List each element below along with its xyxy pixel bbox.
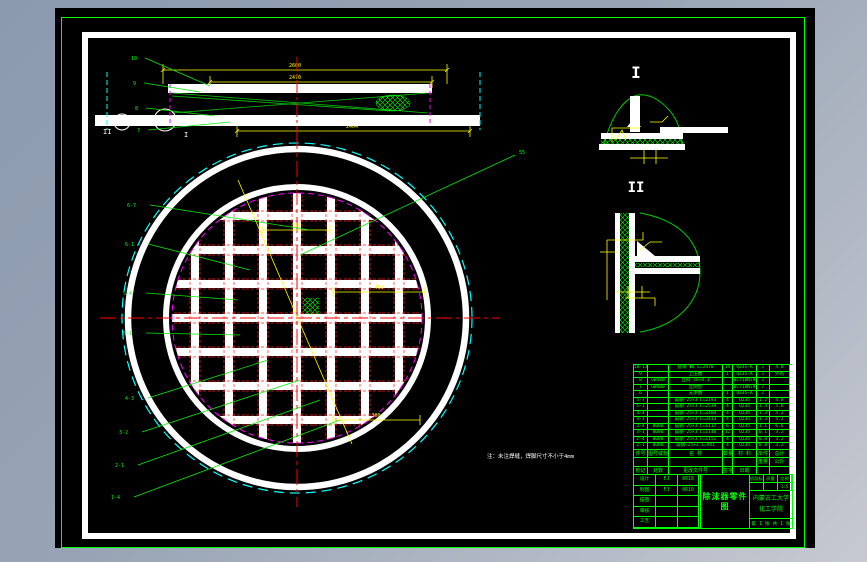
bom-head-cell: 重量 [757, 458, 770, 467]
bom-head-cell [648, 458, 669, 467]
bom-head-cell: 总计 [770, 450, 790, 459]
signature-name [656, 507, 678, 518]
mass-label: 质量 [764, 475, 778, 483]
title-block-right: 阶段标记 质量 比例 1:5 内蒙古工大学 化工学院 第 1 张 共 1 张 [750, 475, 792, 528]
bom-head-cell [723, 458, 733, 467]
signature-name [656, 496, 678, 507]
balloon-main-8: 1-4 [111, 495, 120, 501]
bom-head-cell: 图号或标准号 [648, 450, 669, 459]
bom-head-cell: 单件 [757, 450, 770, 459]
signature-row: 描图 [634, 496, 700, 507]
bill-of-materials: 10-13 圆钢 Φ8 L=2470 14 Q235-A / 4.8 9 上压圈… [633, 364, 792, 475]
signature-row: 制图 FJ 0610 [634, 486, 700, 497]
balloon-main-2: 6-1 [125, 242, 134, 248]
balloon-main-6: 3-2 [119, 430, 128, 436]
organization-line2: 化工学院 [750, 504, 792, 515]
balloon-top-3: 8 [135, 106, 138, 112]
top-view-dimension-lines [161, 64, 472, 137]
signature-name [656, 517, 678, 528]
signature-role: 审核 [634, 507, 656, 518]
detail-i-hatch-band [601, 139, 683, 144]
title-block-marks-row: 阶段标记 质量 比例 [750, 475, 792, 483]
balloon-main-5: 4-3 [125, 396, 134, 402]
top-side-view: 2600 2470 2404 II I 10 9 [95, 56, 480, 143]
balloon-main-4: 5-1 [123, 331, 132, 337]
bom-rows: 10-13 圆钢 Φ8 L=2470 14 Q235-A / 4.8 9 上压圈… [634, 365, 792, 450]
dim-top-inner: 2470 [289, 75, 301, 81]
dim-top-total: 2600 [289, 63, 301, 69]
balloon-main-7: 2-1 [115, 463, 124, 469]
bom-head-cell: 数量 [723, 450, 733, 459]
detail-ii-wall-right [629, 213, 635, 333]
bom-head-cell [634, 458, 648, 467]
detail-ii-band-1 [635, 256, 700, 262]
app-background: { "note": "注：未注焊缝，焊脚尺寸不小于4mm", "labels":… [0, 0, 867, 562]
title-block-center: 除沫器零件图 [701, 475, 750, 528]
table-header-row: 件号 图号或标准号 名 称 数量 材 料 单件 总计 [634, 450, 792, 459]
balloon-top-2: 9 [133, 81, 136, 87]
signature-role: 设计 [634, 475, 656, 486]
drawing-title: 除沫器零件图 [701, 492, 749, 512]
top-plate [168, 84, 432, 93]
signature-date [678, 517, 699, 528]
detail-ii-wall-hatch [620, 213, 629, 333]
dim-grid-c: 300 [371, 413, 380, 419]
detail-ii-wall-left [615, 213, 620, 333]
title-block-marks-values: 1:5 [750, 483, 792, 491]
mark-label: 阶段标记 [750, 475, 764, 483]
title-block: 设计 FJ 0610 制图 FJ 0610 描图 审核 工艺 除沫器零件图 阶段… [633, 474, 793, 529]
title-block-signatures: 设计 FJ 0610 制图 FJ 0610 描图 审核 工艺 [634, 475, 701, 528]
organization: 内蒙古工大学 化工学院 [750, 491, 792, 519]
signature-date: 0610 [678, 486, 699, 497]
signature-role: 制图 [634, 486, 656, 497]
bom-header: 件号 图号或标准号 名 称 数量 材 料 单件 总计 重量 公斤 标记 处数 更… [634, 450, 792, 476]
bottom-plate [95, 115, 480, 126]
signature-date [678, 496, 699, 507]
detail-ii-label: II [628, 180, 645, 196]
detail-ii-band-2 [635, 268, 700, 274]
detail-i-band-1 [601, 133, 683, 139]
detail-view-ii: II [600, 180, 700, 333]
signature-role: 工艺 [634, 517, 656, 528]
balloon-main-3: 5-4 [123, 291, 132, 297]
detail-view-i: I [599, 63, 728, 164]
organization-line1: 内蒙古工大学 [750, 493, 792, 504]
bom-head-cell: 名 称 [669, 450, 723, 459]
signature-name: FJ [656, 475, 678, 486]
bom-head-cell [669, 458, 723, 467]
signature-row: 设计 FJ 0610 [634, 475, 700, 486]
bom-head-cell [733, 458, 757, 467]
signature-row: 审核 [634, 507, 700, 518]
main-circular-view: 380 450 300 6-7 6-1 5-4 5-1 4-3 3-2 2-1 … [100, 133, 525, 507]
balloon-top-1: 10 [131, 56, 137, 62]
mark-value [750, 483, 764, 491]
section-marker-i: I [184, 131, 188, 139]
scale-label: 比例 [778, 475, 792, 483]
bom-head-cell: 公斤 [770, 458, 790, 467]
dim-grid-b: 450 [374, 285, 383, 291]
section-marker-ii: II [103, 128, 111, 136]
bom-head-cell: 材 料 [733, 450, 757, 459]
leader-label-55: 55 [519, 150, 525, 156]
signature-role: 描图 [634, 496, 656, 507]
table-header-row: 重量 公斤 [634, 458, 792, 467]
mesh-hatch-square [303, 298, 319, 314]
signature-row: 工艺 [634, 517, 700, 528]
mesh-hatch-region [376, 95, 410, 111]
signature-date: 0610 [678, 475, 699, 486]
signature-date [678, 507, 699, 518]
technical-note: 注：未注焊缝，焊脚尺寸不小于4mm [487, 454, 627, 461]
scale-value: 1:5 [778, 483, 792, 491]
bom-head-cell: 件号 [634, 450, 648, 459]
signature-name: FJ [656, 486, 678, 497]
balloon-main-1: 6-7 [127, 203, 136, 209]
detail-i-band-2 [599, 144, 685, 150]
detail-i-right-ledge [660, 127, 728, 133]
detail-ii-weld-fillet [637, 241, 655, 256]
balloon-top-4: 7 [137, 128, 140, 134]
detail-ii-hatch-band [635, 263, 700, 267]
mass-value [764, 483, 778, 491]
detail-i-label: I [631, 63, 641, 82]
sheet-number: 第 1 张 共 1 张 [750, 519, 792, 528]
